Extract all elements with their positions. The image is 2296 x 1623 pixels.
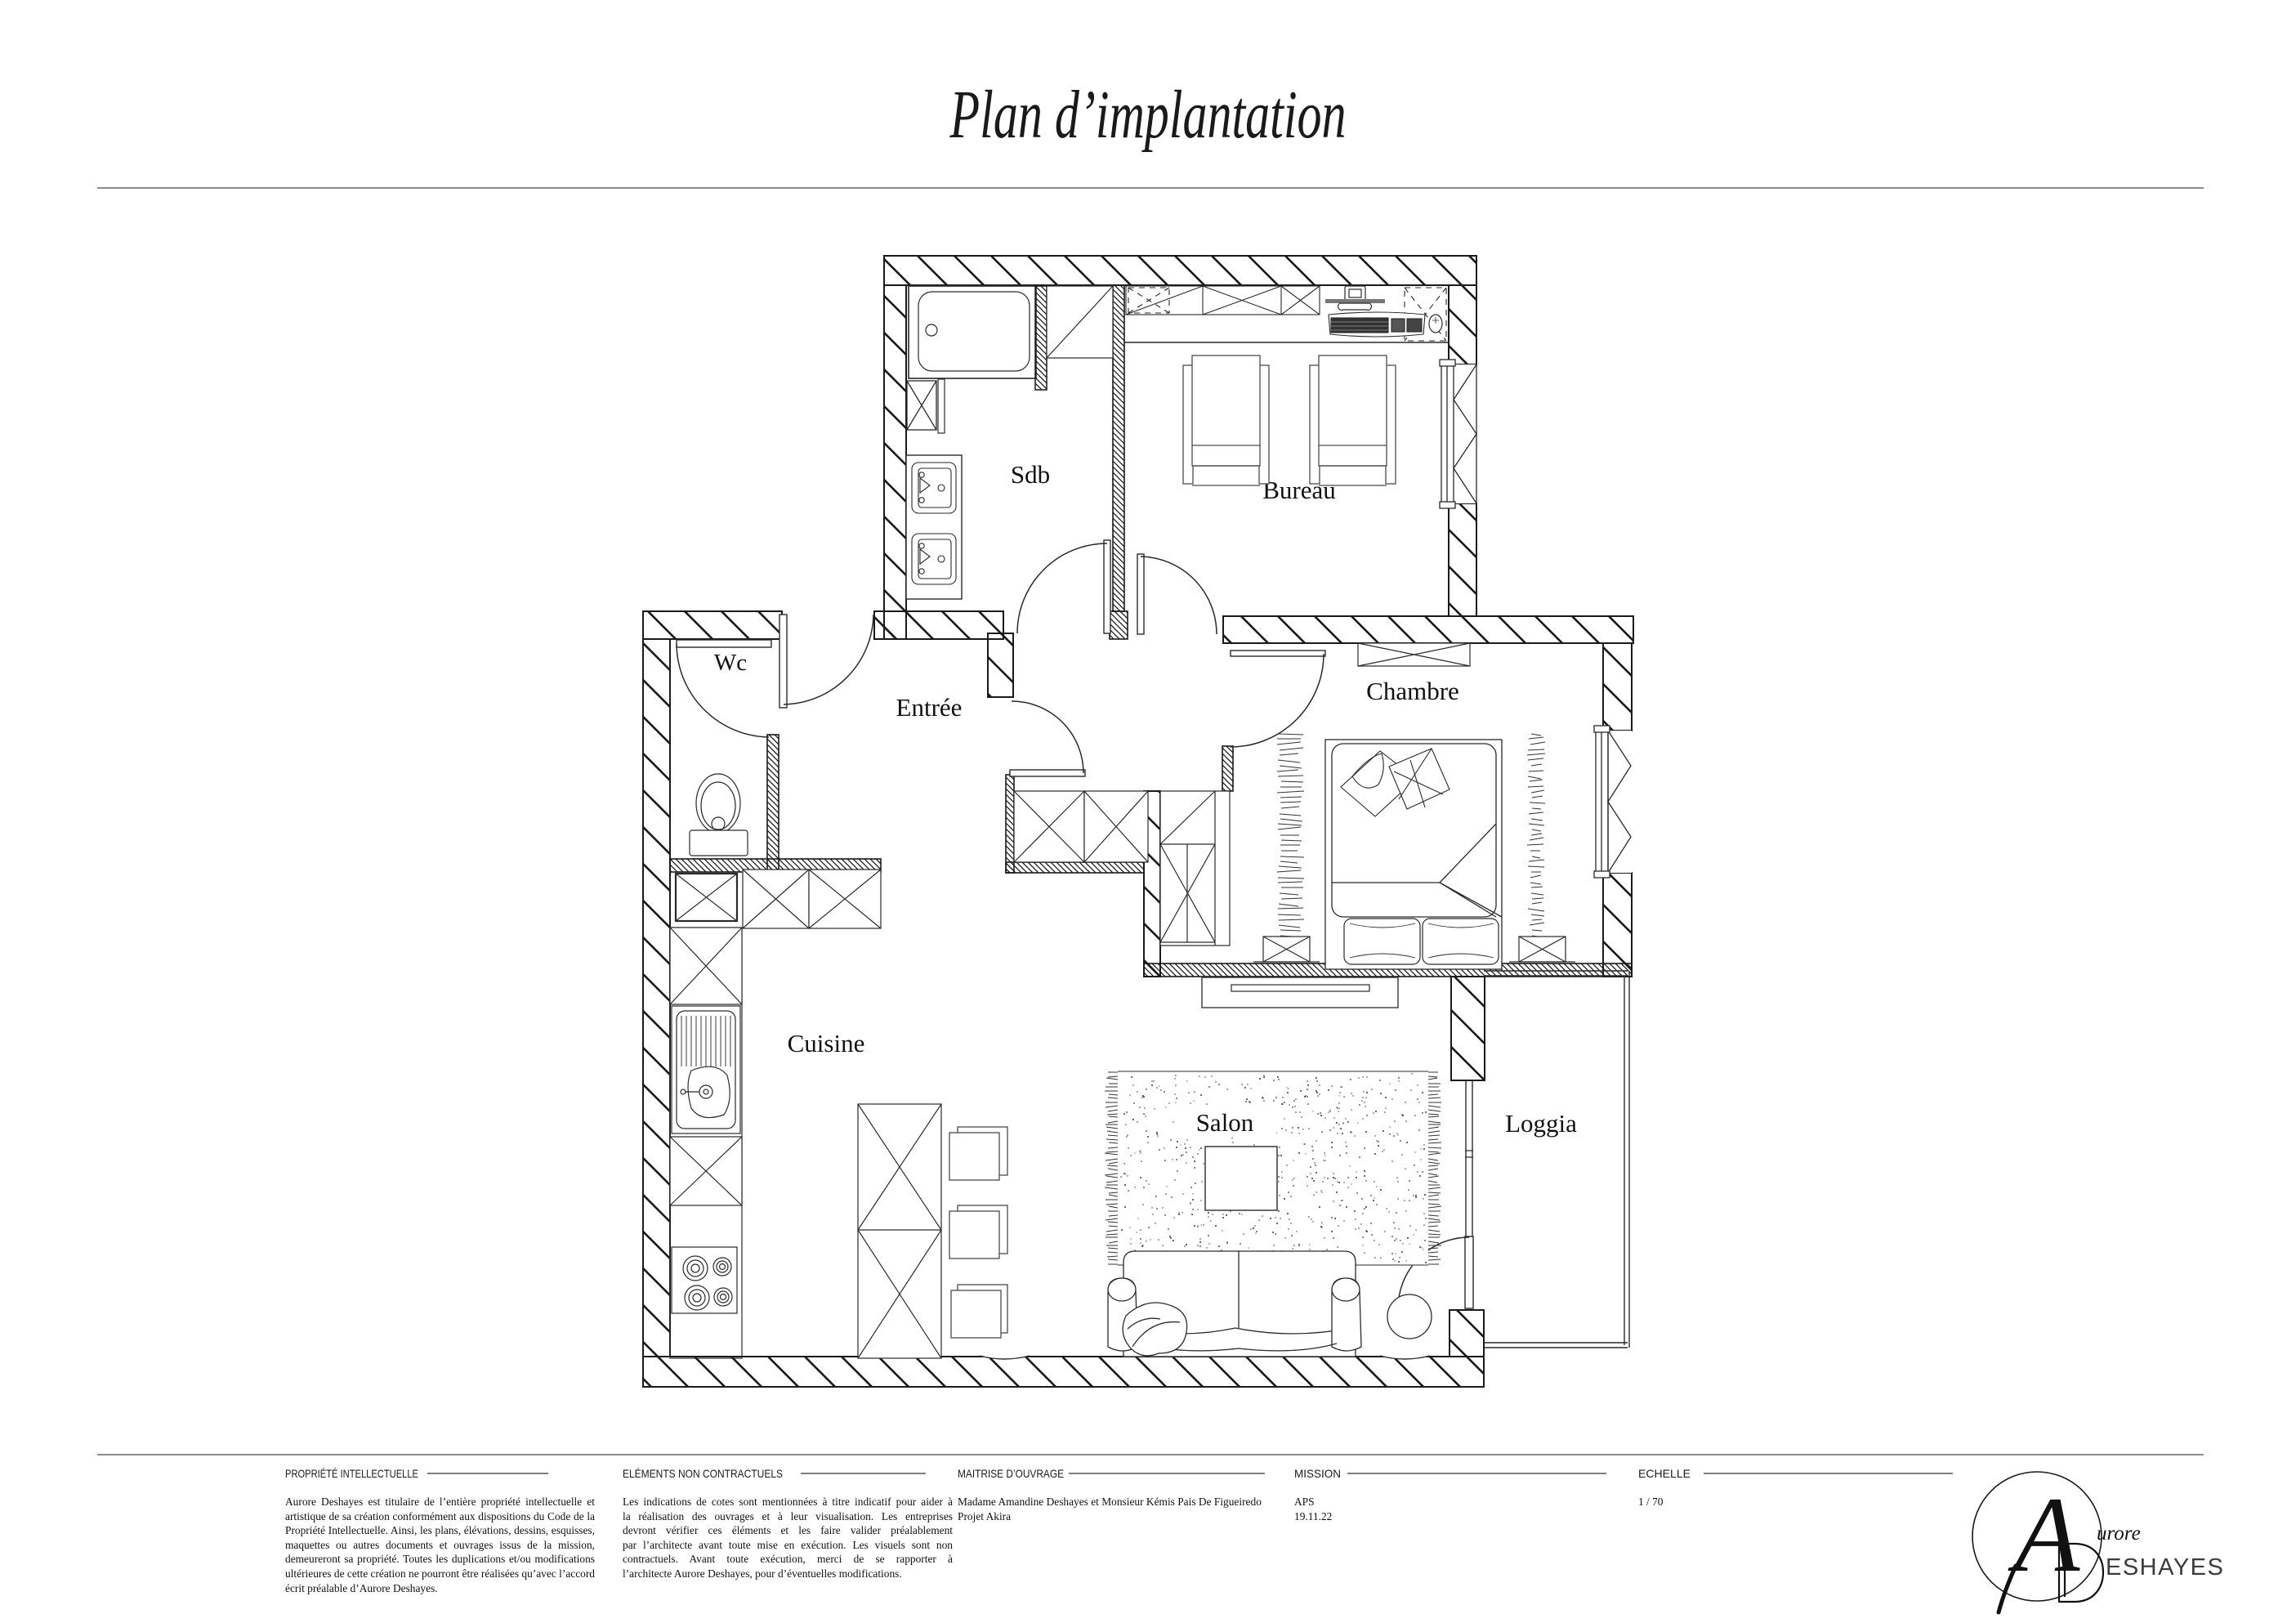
svg-text:MISSION: MISSION — [1294, 1467, 1341, 1480]
svg-text:ECHELLE: ECHELLE — [1638, 1467, 1691, 1480]
svg-text:Entrée: Entrée — [896, 693, 963, 722]
svg-text:A: A — [2008, 1474, 2081, 1594]
svg-text:Cuisine: Cuisine — [788, 1029, 865, 1057]
svg-text:urore: urore — [2097, 1522, 2141, 1545]
svg-text:Plan d’implantation: Plan d’implantation — [949, 77, 1347, 153]
svg-text:Loggia: Loggia — [1505, 1109, 1577, 1138]
svg-text:PROPRIÉTÉ INTELLECTUELLE: PROPRIÉTÉ INTELLECTUELLE — [285, 1467, 418, 1480]
svg-text:Sdb: Sdb — [1011, 460, 1050, 489]
svg-text:Salon: Salon — [1196, 1108, 1254, 1137]
svg-text:MAITRISE D’OUVRAGE: MAITRISE D’OUVRAGE — [958, 1467, 1064, 1480]
svg-text:ELÉMENTS NON CONTRACTUELS: ELÉMENTS NON CONTRACTUELS — [623, 1467, 783, 1480]
svg-text:Chambre: Chambre — [1366, 677, 1459, 705]
svg-text:Wc: Wc — [714, 650, 747, 676]
svg-text:ESHAYES: ESHAYES — [2106, 1554, 2224, 1581]
svg-text:Bureau: Bureau — [1262, 476, 1336, 504]
